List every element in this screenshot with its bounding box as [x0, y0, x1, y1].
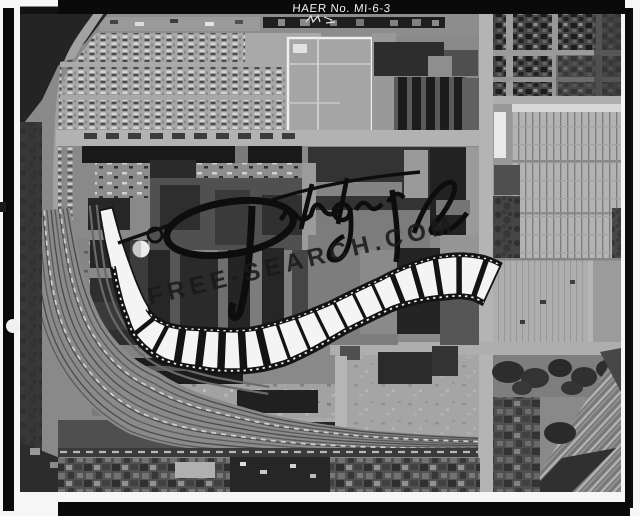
- svg-text:HAER No. MI-6-3: HAER No. MI-6-3: [292, 3, 391, 15]
